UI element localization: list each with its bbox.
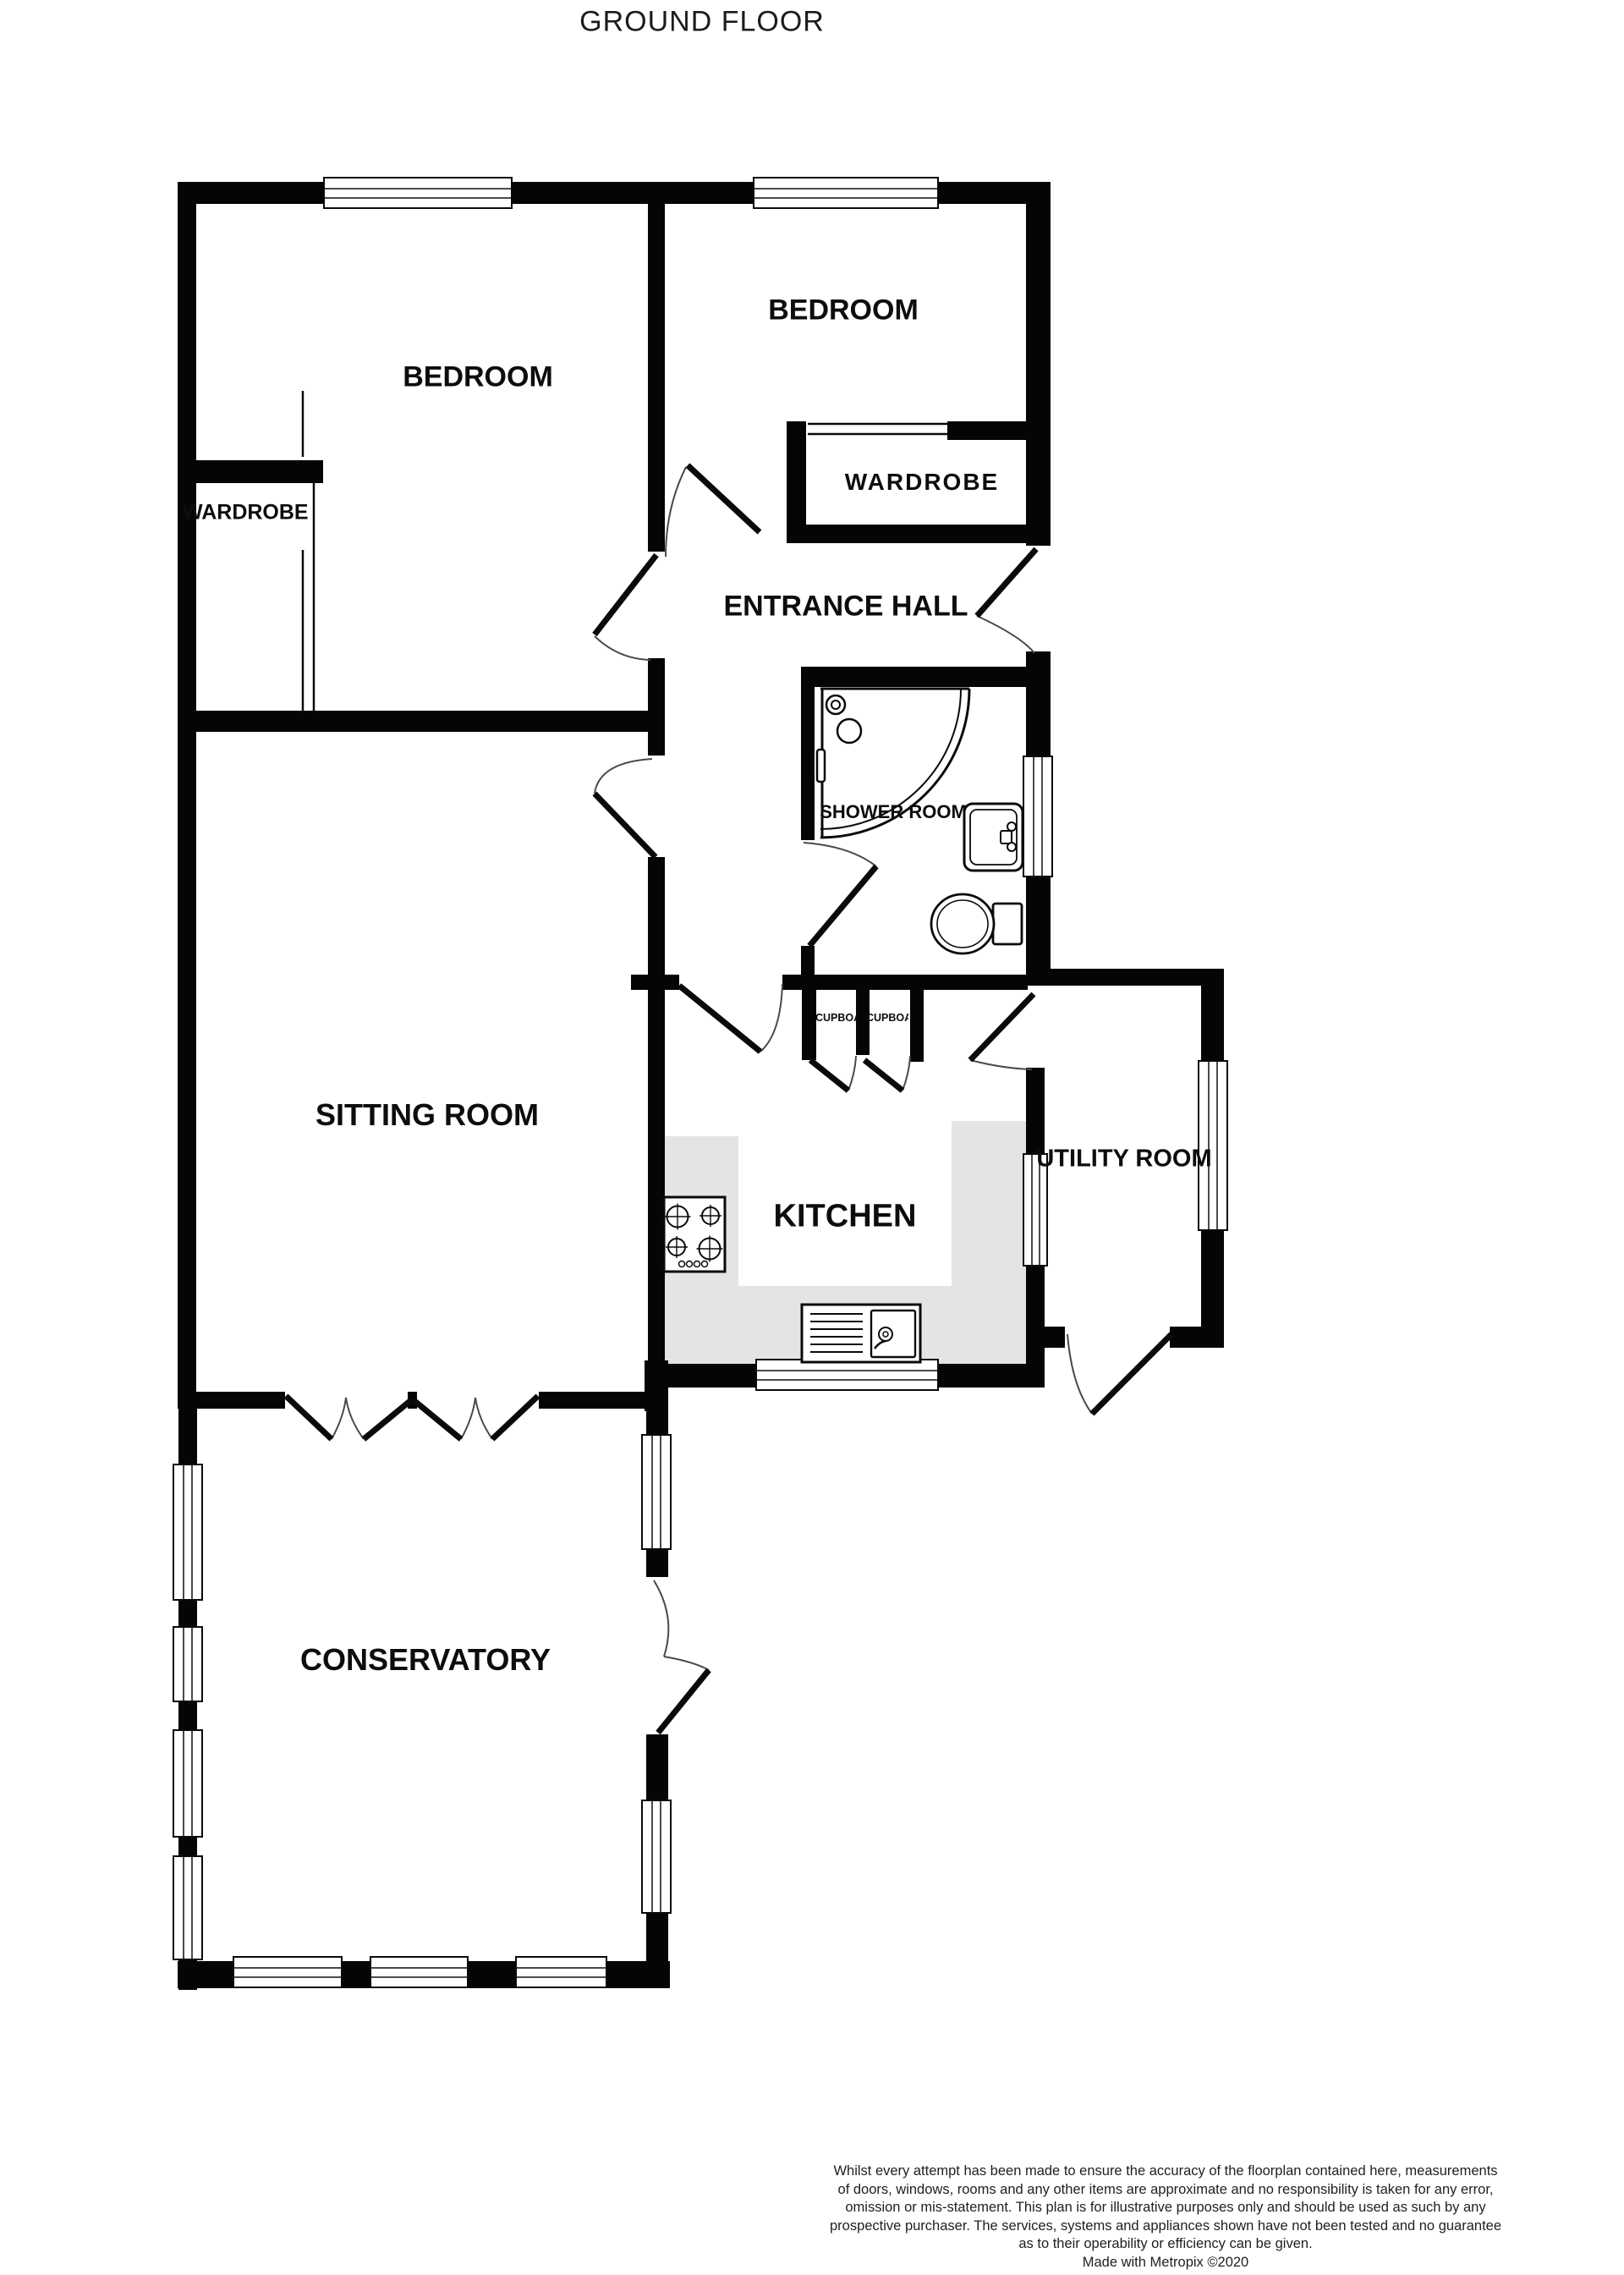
room-label-wardrobe-2: WARDROBE <box>845 469 999 496</box>
utility-room-door-swing-arc <box>970 1060 1032 1069</box>
shower-room-door-swing-arc <box>804 843 876 866</box>
basin-tap-icon <box>1001 831 1012 844</box>
sink-tap-icon <box>879 1327 892 1341</box>
room-label-conservatory: CONSERVATORY <box>300 1642 551 1678</box>
cupboard-1-door-leaf <box>810 1060 848 1091</box>
front-door-swing-arc <box>977 616 1034 653</box>
room-label-sitting-room: SITTING ROOM <box>315 1097 539 1133</box>
disclaimer: Whilst every attempt has been made to en… <box>785 2162 1546 2272</box>
basin-tap-icon <box>1007 822 1016 831</box>
bedroom-2-door-swing-arc <box>666 467 686 557</box>
room-label-shower-room: SHOWER ROOM <box>820 801 967 823</box>
conservatory-exterior-door-swing-arc <box>664 1657 709 1670</box>
room-label-utility-room: UTILITY ROOM <box>1036 1146 1211 1173</box>
sink-basin-icon <box>871 1311 915 1357</box>
shower-room-door-leaf <box>809 866 876 946</box>
doors-and-fixtures-layer <box>0 0 1624 2275</box>
hob-knob-icon <box>679 1261 685 1267</box>
room-label-bedroom-1: BEDROOM <box>403 361 553 394</box>
disclaimer-line: of doors, windows, rooms and any other i… <box>785 2181 1546 2200</box>
toilet-cistern-icon <box>993 904 1022 944</box>
conservatory-exterior-door-swing-arc <box>654 1580 668 1657</box>
room-label-cupboard-1: CUPBOARD <box>815 1012 858 1024</box>
floorplan-canvas: GROUND FLOOR BEDROOM BEDROOM WARDROBE WA… <box>0 0 1624 2275</box>
bedroom-1-door-leaf <box>595 555 656 635</box>
shower-control-icon <box>837 719 861 743</box>
sitting-room-door-swing-arc <box>595 759 652 794</box>
disclaimer-line: Whilst every attempt has been made to en… <box>785 2162 1546 2181</box>
french-door-leaf-1-leaf <box>286 1396 332 1439</box>
shower-head-icon <box>826 695 845 714</box>
hob-knob-icon <box>702 1261 708 1267</box>
room-label-bedroom-2: BEDROOM <box>768 294 919 327</box>
french-door-leaf-1-swing-arc <box>332 1398 364 1439</box>
french-door-leaf-3-leaf <box>414 1400 461 1439</box>
room-label-wardrobe-1: WARDROBE <box>183 501 309 525</box>
utility-exterior-door-swing-arc <box>1067 1334 1092 1414</box>
disclaimer-line: omission or mis-statement. This plan is … <box>785 2199 1546 2217</box>
kitchen-door-swing-arc <box>760 984 782 1052</box>
cupboard-2-door-leaf <box>864 1060 903 1091</box>
french-door-leaf-4-leaf <box>492 1396 538 1439</box>
cupboard-2-door-swing-arc <box>903 1056 910 1091</box>
toilet-bowl-icon <box>937 900 988 948</box>
room-label-kitchen: KITCHEN <box>774 1199 917 1235</box>
utility-exterior-door-leaf <box>1092 1334 1171 1414</box>
disclaimer-line: as to their operability or efficiency ca… <box>785 2235 1546 2254</box>
front-door-leaf <box>977 549 1036 616</box>
room-label-cupboard-2: CUPBOARD <box>866 1012 908 1024</box>
hob-knob-icon <box>694 1261 700 1267</box>
basin-tap-icon <box>1007 843 1016 851</box>
cupboard-1-door-swing-arc <box>848 1056 856 1091</box>
sitting-room-door-leaf <box>595 794 656 857</box>
conservatory-exterior-door-leaf <box>658 1670 709 1733</box>
shower-rail-icon <box>817 750 825 782</box>
kitchen-door-leaf <box>679 986 760 1052</box>
hob-knob-icon <box>687 1261 693 1267</box>
metropix-credit: Made with Metropix ©2020 <box>785 2254 1546 2272</box>
french-door-leaf-2-leaf <box>364 1400 411 1439</box>
utility-room-door-leaf <box>970 994 1034 1060</box>
room-label-entrance-hall: ENTRANCE HALL <box>724 591 968 624</box>
disclaimer-line: prospective purchaser. The services, sys… <box>785 2217 1546 2236</box>
bedroom-1-door-swing-arc <box>595 636 650 660</box>
bedroom-2-door-leaf <box>688 465 760 532</box>
french-door-leaf-3-swing-arc <box>461 1398 492 1439</box>
